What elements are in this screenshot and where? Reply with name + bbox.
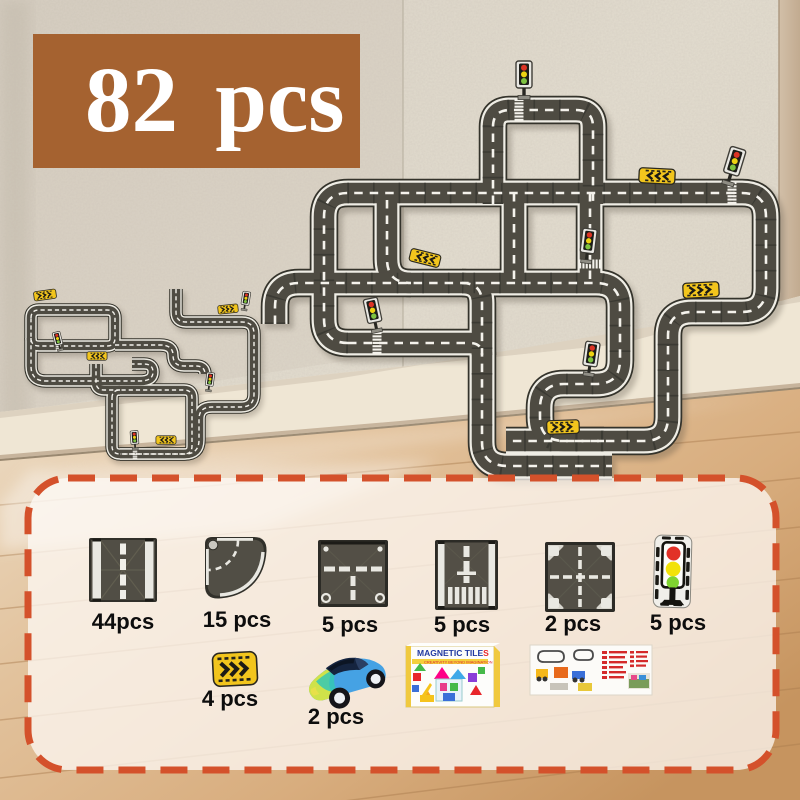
svg-text:5 pcs: 5 pcs [650, 610, 706, 635]
svg-text:MAGNETIC TILES: MAGNETIC TILES [417, 648, 489, 658]
svg-text:82 pcs: 82 pcs [85, 49, 344, 152]
svg-text:2 pcs: 2 pcs [545, 611, 601, 636]
svg-text:5 pcs: 5 pcs [434, 612, 490, 637]
svg-text:15 pcs: 15 pcs [203, 607, 272, 632]
svg-text:5 pcs: 5 pcs [322, 612, 378, 637]
svg-text:4 pcs: 4 pcs [202, 686, 258, 711]
svg-text:2 pcs: 2 pcs [308, 704, 364, 729]
svg-text:CREATIVITY BEYOND IMAGINATION: CREATIVITY BEYOND IMAGINATION [424, 660, 493, 665]
svg-text:44pcs: 44pcs [92, 609, 154, 634]
